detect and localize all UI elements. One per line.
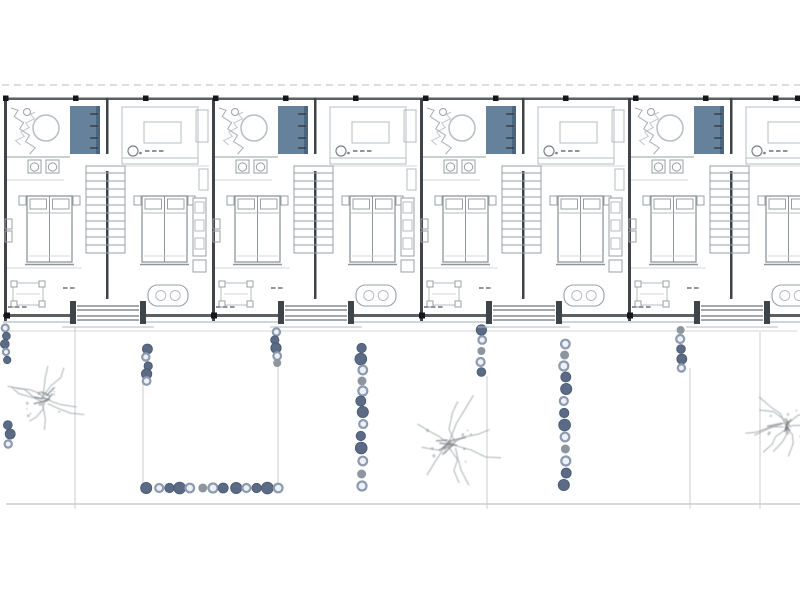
stepping-stone — [252, 483, 261, 492]
stepping-stone — [357, 470, 366, 479]
stepping-stone — [218, 483, 228, 493]
tree-sketch — [417, 395, 501, 485]
stepping-stone — [3, 349, 9, 355]
kitchen-lower — [609, 260, 622, 272]
stepping-stone — [561, 445, 570, 454]
basin — [28, 160, 41, 173]
kitchen-lower — [401, 260, 414, 272]
basin — [46, 160, 59, 173]
tree-sketch — [745, 397, 800, 457]
fridge — [615, 169, 624, 190]
stepping-stone — [357, 343, 366, 352]
stepping-stone-row — [141, 482, 283, 494]
stepping-stone — [209, 484, 218, 493]
bathtub — [657, 115, 683, 141]
bed-left — [649, 196, 698, 265]
stepping-stone — [355, 442, 367, 454]
stepping-stone — [165, 483, 174, 492]
living-table — [352, 122, 389, 143]
bathtub — [241, 115, 267, 141]
nightstand — [489, 196, 496, 205]
stepping-stone — [477, 347, 485, 355]
stepping-stone — [356, 396, 366, 406]
stepping-stone — [242, 484, 250, 492]
mid-wall-lower — [730, 171, 733, 307]
bed-right — [140, 196, 189, 265]
stepping-stone — [155, 484, 163, 492]
stepping-stone — [186, 484, 195, 493]
stepping-stone — [142, 353, 149, 360]
living-table — [768, 122, 800, 143]
mid-wall-upper — [106, 98, 109, 154]
stepping-stone — [5, 429, 15, 439]
stepping-stone-path — [558, 340, 572, 491]
bed-right — [764, 196, 800, 265]
staircase — [502, 166, 541, 253]
townhouse-unit-1 — [4, 98, 209, 327]
stepping-stone — [678, 364, 685, 371]
stepping-stone — [231, 482, 242, 493]
stepping-stone — [0, 340, 9, 349]
stepping-stone — [142, 344, 152, 354]
bed-left — [25, 196, 74, 265]
vanity-sketch — [11, 108, 35, 154]
townhouse-unit-4 — [628, 98, 800, 327]
stepping-stone — [273, 359, 281, 367]
top-facade-wall — [3, 98, 800, 101]
lamp-icon — [336, 146, 350, 156]
column-marker — [633, 96, 639, 102]
staircase — [294, 166, 333, 253]
vanity-sketch — [635, 108, 659, 154]
nightstand — [550, 196, 557, 205]
party-wall — [420, 98, 423, 321]
stepping-stone — [273, 328, 280, 335]
column-marker — [353, 96, 359, 102]
site-floor-plan-drawing — [0, 0, 800, 600]
nightstand — [281, 196, 288, 205]
column-marker — [773, 96, 779, 102]
stepping-stone — [3, 356, 10, 363]
stepping-stone — [358, 387, 367, 396]
bathtub — [449, 115, 475, 141]
mid-wall-lower — [314, 171, 317, 307]
garden-area — [0, 325, 800, 510]
mid-wall-lower — [522, 171, 525, 307]
mid-wall-upper — [314, 98, 317, 154]
stepping-stone — [356, 431, 365, 440]
column-marker — [703, 96, 709, 102]
column-marker — [419, 313, 425, 319]
stepping-stone — [141, 482, 152, 493]
column-marker — [795, 96, 800, 102]
stepping-stone — [477, 368, 486, 377]
stepping-stone-path — [676, 326, 687, 372]
bed-left — [441, 196, 490, 265]
desk — [11, 281, 45, 307]
nightstand — [19, 196, 26, 205]
entry-porch — [62, 299, 154, 327]
screenshot-root — [0, 0, 800, 600]
column-marker — [73, 96, 79, 102]
stepping-stone — [359, 420, 367, 428]
column-marker — [4, 313, 10, 319]
stepping-stone — [5, 440, 12, 447]
mid-wall-upper — [730, 98, 733, 154]
stepping-stone-path — [0, 325, 11, 364]
stepping-stone — [355, 353, 367, 365]
stepping-stone — [561, 383, 572, 394]
column-marker — [493, 96, 499, 102]
stepping-stone — [359, 457, 368, 466]
nightstand — [643, 196, 650, 205]
nightstand — [73, 196, 80, 205]
vanity-sketch — [219, 108, 243, 154]
nightstand — [697, 196, 704, 205]
basin — [462, 160, 475, 173]
stepping-stone — [676, 335, 684, 343]
bed-right — [348, 196, 397, 265]
column-marker — [423, 96, 429, 102]
kitchen-counter — [609, 198, 622, 256]
stepping-stone — [358, 377, 367, 386]
party-wall — [212, 98, 215, 321]
party-wall — [4, 98, 7, 321]
stepping-stone-path — [3, 421, 15, 448]
dining-table — [772, 285, 800, 306]
staircase — [86, 166, 125, 253]
stepping-stone — [561, 340, 570, 349]
vanity-sketch — [427, 108, 451, 154]
nightstand — [342, 196, 349, 205]
stepping-stone — [357, 406, 368, 417]
fridge — [199, 169, 208, 190]
tree-sketch — [8, 366, 85, 430]
lamp-icon — [544, 146, 558, 156]
entry-porch — [270, 299, 362, 327]
stepping-stone — [561, 457, 570, 466]
nightstand — [758, 196, 765, 205]
stepping-stone — [561, 372, 571, 382]
kitchen-counter — [401, 198, 414, 256]
stepping-stone — [560, 397, 568, 405]
basin — [652, 160, 665, 173]
column-marker — [3, 96, 9, 102]
stepping-stone — [677, 345, 686, 354]
desk — [427, 281, 461, 307]
entry-porch — [686, 299, 778, 327]
column-marker — [283, 96, 289, 102]
column-marker — [627, 313, 633, 319]
column-marker — [211, 313, 217, 319]
mid-wall-upper — [522, 98, 525, 154]
lamp-icon — [752, 146, 766, 156]
nightstand — [227, 196, 234, 205]
column-marker — [563, 96, 569, 102]
mid-wall-lower — [106, 171, 109, 307]
basin — [670, 160, 683, 173]
dining-table — [356, 285, 396, 306]
stepping-stone — [359, 366, 368, 375]
stepping-stone — [198, 484, 207, 493]
column-marker — [143, 96, 149, 102]
stepping-stone — [559, 362, 568, 371]
stepping-stone — [476, 325, 486, 335]
kitchen-counter — [193, 198, 206, 256]
nightstand — [435, 196, 442, 205]
stepping-stone — [3, 421, 12, 430]
stepping-stone — [273, 352, 281, 360]
stepping-stone — [358, 482, 367, 491]
stepping-stone-path — [141, 344, 152, 385]
stepping-stone — [2, 325, 9, 332]
basin — [444, 160, 457, 173]
stepping-stone — [143, 377, 151, 385]
party-wall — [628, 98, 631, 321]
stepping-stone — [477, 358, 485, 366]
fridge — [407, 169, 416, 190]
townhouse-unit-2 — [212, 98, 417, 327]
desk — [635, 281, 669, 307]
bed-left — [233, 196, 282, 265]
stepping-stone — [560, 408, 569, 417]
kitchen-lower — [193, 260, 206, 272]
living-table — [560, 122, 597, 143]
lamp-icon — [128, 146, 142, 156]
stepping-stone-path — [355, 343, 369, 490]
stepping-stone — [561, 468, 571, 478]
basin — [254, 160, 267, 173]
stepping-stone-path — [476, 325, 486, 377]
stepping-stone — [478, 336, 486, 344]
nightstand — [134, 196, 141, 205]
bathtub — [33, 115, 59, 141]
stepping-stone — [262, 482, 274, 494]
desk — [219, 281, 253, 307]
living-table — [144, 122, 181, 143]
stepping-stone — [3, 332, 11, 340]
basin — [236, 160, 249, 173]
townhouse-unit-3 — [420, 98, 625, 327]
stepping-stone — [560, 351, 569, 360]
stepping-stone — [677, 354, 687, 364]
stepping-stone-path — [271, 328, 282, 367]
stepping-stone — [274, 484, 283, 493]
stepping-stone — [677, 326, 685, 334]
dining-table — [148, 285, 188, 306]
staircase — [710, 166, 749, 253]
stepping-stone — [558, 479, 569, 490]
stepping-stone — [559, 419, 571, 431]
bed-right — [556, 196, 605, 265]
stepping-stone — [174, 482, 186, 494]
dining-table — [564, 285, 604, 306]
column-marker — [213, 96, 219, 102]
stepping-stone — [561, 433, 570, 442]
entry-porch — [478, 299, 570, 327]
